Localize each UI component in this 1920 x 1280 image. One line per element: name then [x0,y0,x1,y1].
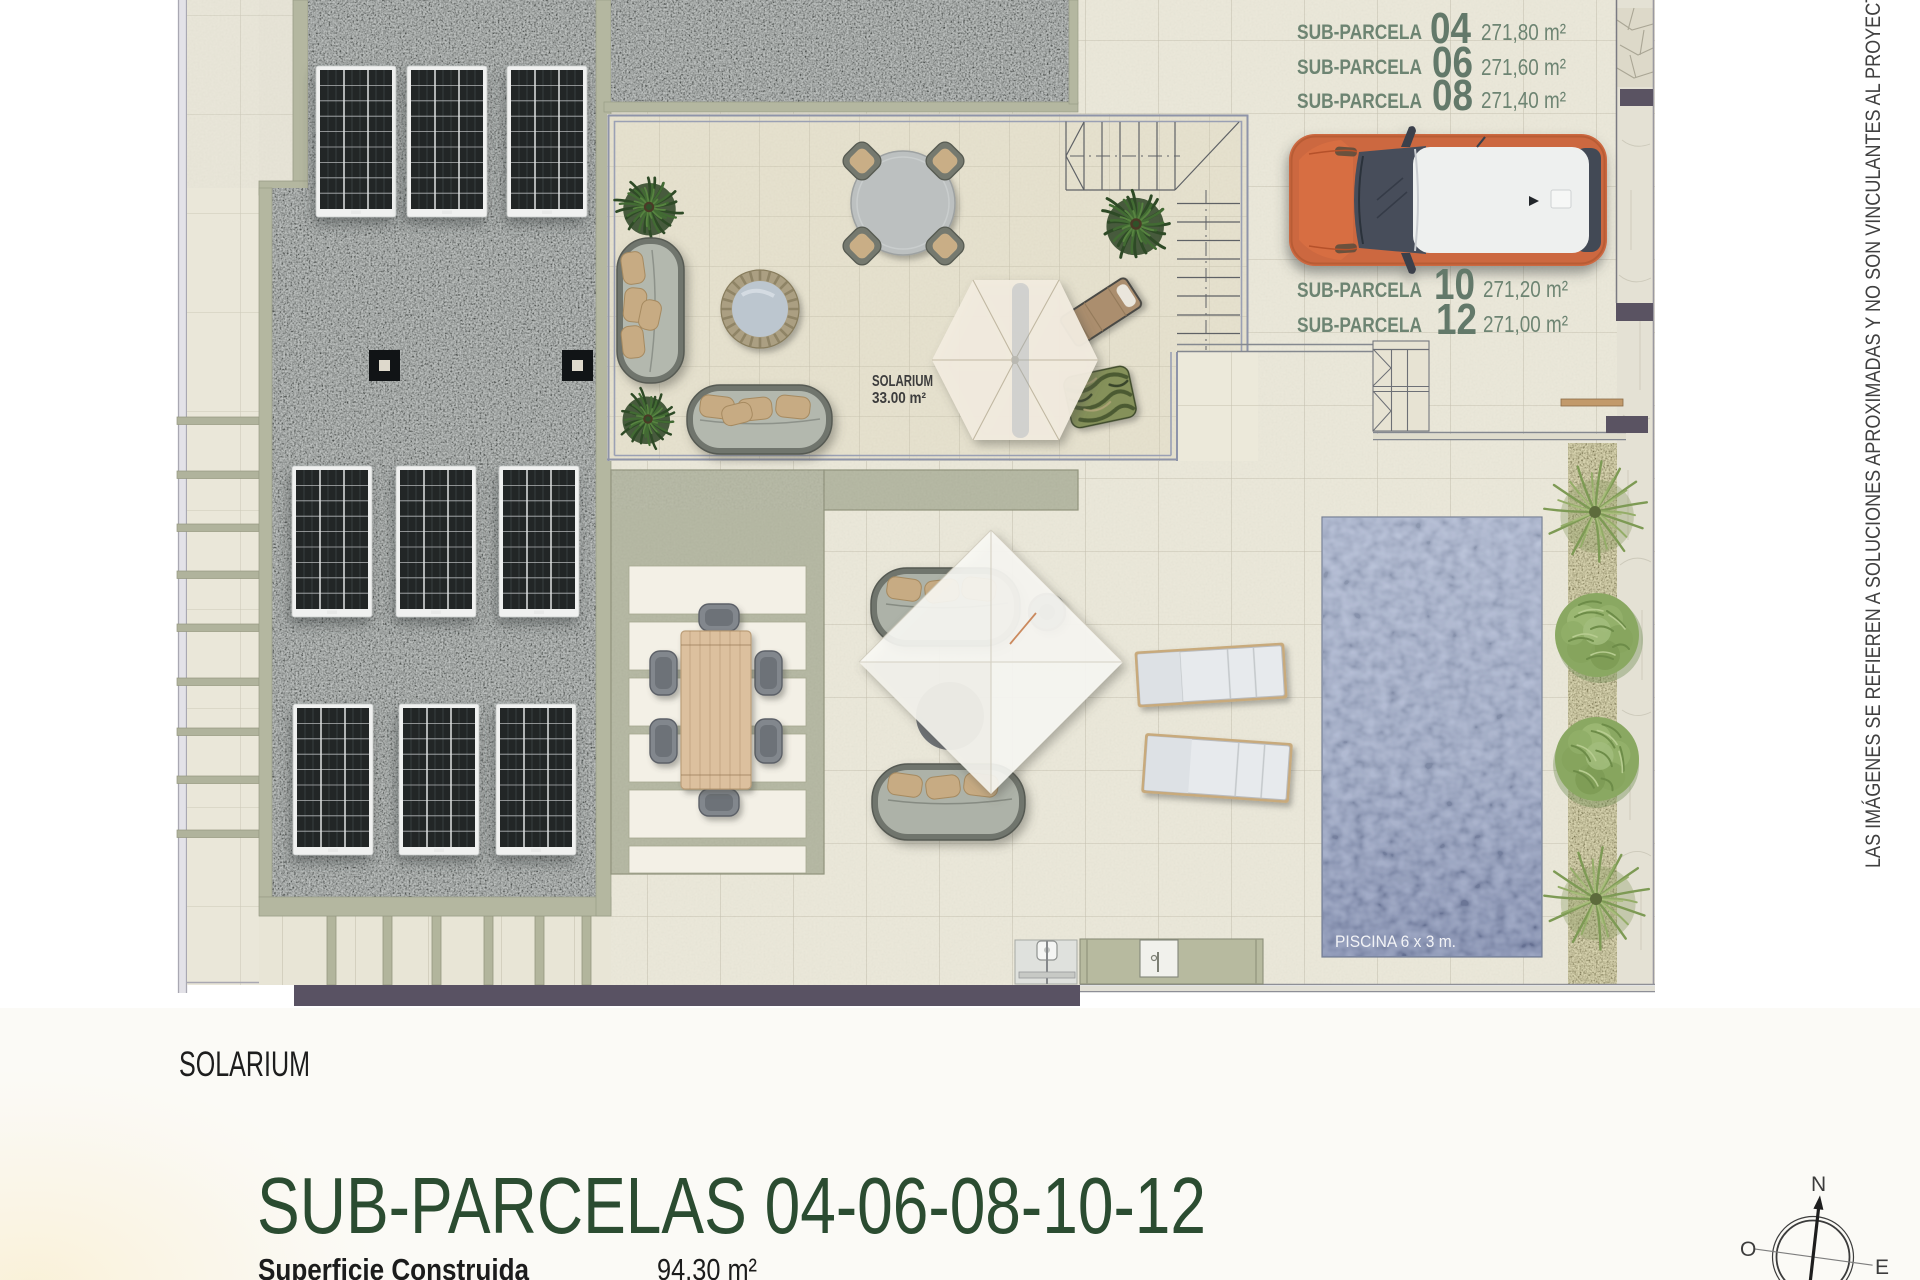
svg-text:E: E [1875,1256,1889,1279]
svg-text:PISCINA 6 x 3 m.: PISCINA 6 x 3 m. [1335,933,1456,951]
svg-text:94,30 m²: 94,30 m² [657,1252,757,1280]
svg-text:271,60 m²: 271,60 m² [1481,54,1566,80]
svg-text:N: N [1811,1173,1826,1196]
svg-text:LAS IMÁGENES SE REFIEREN A SOL: LAS IMÁGENES SE REFIEREN A SOLUCIONES AP… [1862,0,1885,868]
svg-text:SUB-PARCELA: SUB-PARCELA [1297,313,1422,337]
svg-text:33.00 m²: 33.00 m² [872,390,926,407]
svg-text:271,20 m²: 271,20 m² [1483,276,1568,302]
svg-text:SUB-PARCELAS 04-06-08-10-12: SUB-PARCELAS 04-06-08-10-12 [257,1161,1206,1250]
svg-text:12: 12 [1436,295,1477,344]
svg-text:SUB-PARCELA: SUB-PARCELA [1297,20,1422,44]
svg-text:SUB-PARCELA: SUB-PARCELA [1297,55,1422,79]
svg-text:SUB-PARCELA: SUB-PARCELA [1297,278,1422,302]
svg-text:O: O [1740,1238,1756,1261]
svg-text:271,00 m²: 271,00 m² [1483,311,1568,337]
svg-text:SUB-PARCELA: SUB-PARCELA [1297,89,1422,113]
svg-text:SOLARIUM: SOLARIUM [872,373,933,390]
svg-text:271,40 m²: 271,40 m² [1481,87,1566,113]
svg-text:Superficie Construida: Superficie Construida [258,1252,530,1280]
svg-text:SOLARIUM: SOLARIUM [179,1045,310,1084]
svg-text:08: 08 [1432,71,1473,120]
svg-text:271,80 m²: 271,80 m² [1481,19,1566,45]
